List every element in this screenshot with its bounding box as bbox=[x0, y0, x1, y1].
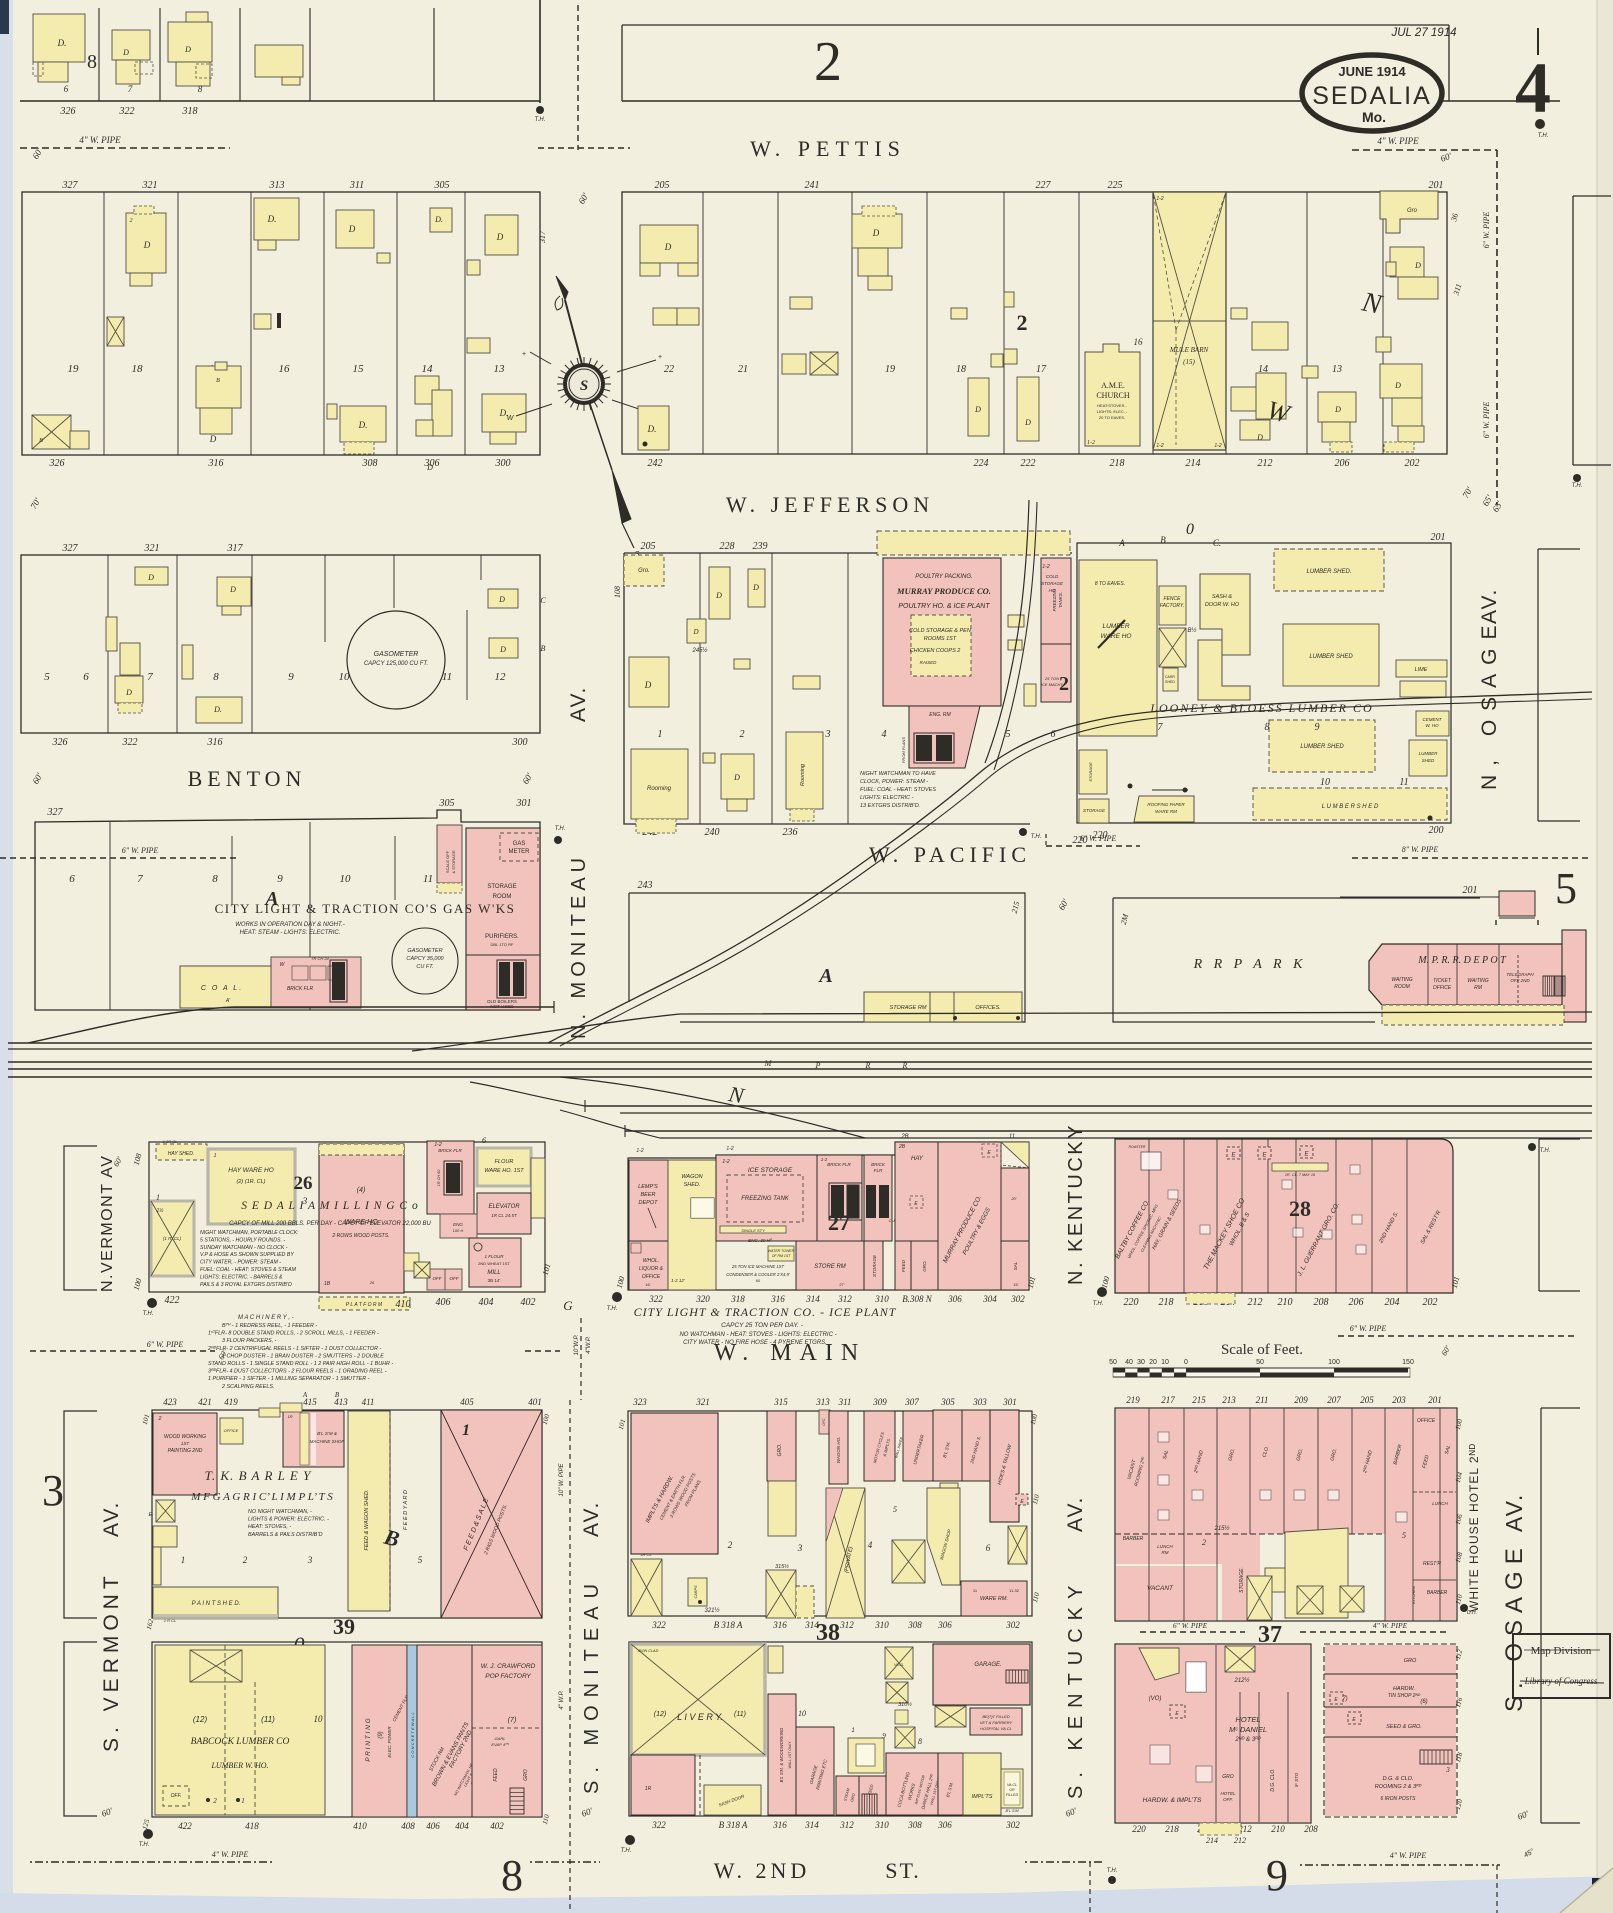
svg-text:1: 1 bbox=[462, 1422, 470, 1439]
svg-text:WHITE HOUSE HOTEL 2ᴺᴰ: WHITE HOUSE HOTEL 2ᴺᴰ bbox=[1467, 1443, 1481, 1612]
svg-text:B: B bbox=[541, 644, 546, 653]
svg-text:AV.: AV. bbox=[100, 1501, 123, 1537]
svg-text:317: 317 bbox=[227, 543, 244, 554]
svg-text:25 TON: 25 TON bbox=[1044, 676, 1059, 681]
svg-text:L I V E R Y.: L I V E R Y. bbox=[677, 1712, 723, 1722]
svg-text:TANKS.: TANKS. bbox=[1058, 592, 1063, 608]
svg-text:2B: 2B bbox=[898, 1144, 906, 1150]
svg-text:320: 320 bbox=[695, 1294, 710, 1304]
svg-text:STORAGE RM: STORAGE RM bbox=[890, 1005, 927, 1011]
svg-text:LUMBER: LUMBER bbox=[1419, 751, 1439, 756]
svg-text:1: 1 bbox=[156, 1193, 160, 1202]
svg-text:239: 239 bbox=[753, 541, 768, 552]
svg-text:0: 0 bbox=[1186, 521, 1194, 538]
svg-text:GRO.: GRO. bbox=[922, 1260, 927, 1272]
svg-text:B’L S’M &: B’L S’M & bbox=[317, 1431, 337, 1436]
svg-text:318: 318 bbox=[182, 106, 198, 117]
svg-text:W. PETTIS: W. PETTIS bbox=[750, 136, 906, 161]
svg-text:GARAGE.: GARAGE. bbox=[974, 1662, 1001, 1668]
svg-text:150: 150 bbox=[1402, 1359, 1414, 1366]
svg-text:3: 3 bbox=[307, 1555, 313, 1565]
svg-text:D: D bbox=[664, 242, 672, 252]
svg-text:EVAP 4ᵀᴴ: EVAP 4ᵀᴴ bbox=[491, 1742, 509, 1747]
svg-text:PURIFIERS.: PURIFIERS. bbox=[485, 934, 519, 940]
svg-text:228: 228 bbox=[720, 541, 735, 552]
svg-text:206: 206 bbox=[1349, 1297, 1364, 1308]
svg-text:410: 410 bbox=[353, 1821, 367, 1831]
svg-text:204: 204 bbox=[1385, 1297, 1400, 1308]
svg-text:12: 12 bbox=[495, 671, 507, 683]
svg-text:312: 312 bbox=[837, 1294, 852, 1304]
svg-text:T.H.: T.H. bbox=[139, 1842, 150, 1848]
svg-text:410: 410 bbox=[396, 1299, 411, 1310]
svg-text:STORAGE: STORAGE bbox=[487, 884, 516, 890]
svg-text:S. MONITEAU: S. MONITEAU bbox=[581, 1576, 603, 1794]
svg-text:6" W. PIPE: 6" W. PIPE bbox=[1482, 212, 1491, 249]
svg-text:POULTRY HO. & ICE PLANT: POULTRY HO. & ICE PLANT bbox=[898, 603, 990, 610]
svg-text:219: 219 bbox=[1126, 1395, 1140, 1405]
svg-text:D: D bbox=[1394, 381, 1401, 390]
svg-text:202: 202 bbox=[1405, 458, 1420, 469]
svg-text:CARPS: CARPS bbox=[694, 1585, 698, 1599]
svg-text:WALL 1ST ONLY: WALL 1ST ONLY bbox=[788, 1741, 792, 1769]
svg-text:322: 322 bbox=[119, 106, 135, 117]
svg-text:(1 R. CL): (1 R. CL) bbox=[163, 1236, 182, 1241]
svg-text:314: 314 bbox=[805, 1294, 820, 1304]
svg-text:4: 4 bbox=[1515, 48, 1551, 128]
svg-text:B: B bbox=[335, 1391, 340, 1399]
svg-text:100 H: 100 H bbox=[453, 1228, 464, 1233]
svg-text:208: 208 bbox=[1304, 1824, 1318, 1834]
svg-text:LEMP'S: LEMP'S bbox=[638, 1184, 658, 1190]
svg-text:310½: 310½ bbox=[898, 1701, 912, 1708]
svg-text:1: 1 bbox=[851, 1728, 854, 1734]
svg-text:225: 225 bbox=[1108, 180, 1123, 191]
svg-text:GRO: GRO bbox=[1404, 1658, 1417, 1664]
svg-text:SEDALIA: SEDALIA bbox=[1312, 82, 1432, 110]
svg-text:2ᴺᴰ & 3ᴿᴰ: 2ᴺᴰ & 3ᴿᴰ bbox=[1234, 1736, 1260, 1743]
svg-text:10"W.P.: 10"W.P. bbox=[574, 1335, 580, 1356]
svg-text:FEED & WAGON SHED.: FEED & WAGON SHED. bbox=[364, 1489, 370, 1550]
svg-text:2 ROWS WOOD POSTS.: 2 ROWS WOOD POSTS. bbox=[332, 1233, 390, 1239]
svg-text:SUNDAY WATCHMAN - NO CLOCK -: SUNDAY WATCHMAN - NO CLOCK - bbox=[200, 1245, 288, 1251]
svg-text:SCALE OFF: SCALE OFF bbox=[445, 850, 450, 873]
svg-text:(12): (12) bbox=[193, 1715, 208, 1724]
svg-text:D.: D. bbox=[358, 420, 368, 430]
svg-text:200: 200 bbox=[1429, 825, 1444, 836]
svg-text:WAITING: WAITING bbox=[1467, 978, 1488, 984]
svg-text:D: D bbox=[974, 405, 981, 414]
svg-text:B: B bbox=[39, 438, 43, 444]
svg-text:406: 406 bbox=[426, 1821, 440, 1831]
svg-text:6" W. PIPE: 6" W. PIPE bbox=[122, 846, 159, 855]
svg-text:RM: RM bbox=[1162, 1550, 1169, 1555]
svg-text:R: R bbox=[902, 1061, 908, 1070]
svg-text:8 TO EAVES.: 8 TO EAVES. bbox=[1095, 581, 1125, 587]
svg-text:OF RM 1ST: OF RM 1ST bbox=[772, 1254, 791, 1258]
svg-text:2: 2 bbox=[158, 1416, 162, 1422]
svg-text:215: 215 bbox=[1192, 1395, 1206, 1405]
svg-text:BABCOCK LUMBER CO: BABCOCK LUMBER CO bbox=[191, 1737, 290, 1747]
svg-text:B’L S’M. & WOODWORKING: B’L S’M. & WOODWORKING bbox=[779, 1727, 784, 1782]
svg-text:309: 309 bbox=[872, 1397, 887, 1407]
svg-text:305: 305 bbox=[434, 180, 450, 191]
svg-text:5: 5 bbox=[44, 671, 50, 683]
svg-text:322: 322 bbox=[648, 1294, 663, 1304]
svg-text:T.H.: T.H. bbox=[1572, 483, 1583, 489]
svg-text:OFC: OFC bbox=[822, 1418, 826, 1426]
svg-text:318: 318 bbox=[730, 1294, 745, 1304]
svg-text:OR: OR bbox=[1009, 1788, 1015, 1792]
svg-text:W. MAIN: W. MAIN bbox=[714, 1340, 866, 1366]
svg-text:423: 423 bbox=[163, 1397, 177, 1407]
svg-text:322: 322 bbox=[651, 1620, 666, 1630]
svg-text:4" W. PIPE: 4" W. PIPE bbox=[212, 1850, 249, 1859]
svg-text:CAPCY 25 TON PER DAY. -: CAPCY 25 TON PER DAY. - bbox=[721, 1322, 804, 1329]
svg-text:BRICK FLR: BRICK FLR bbox=[287, 986, 314, 992]
svg-text:CHURCH: CHURCH bbox=[1096, 391, 1130, 400]
svg-text:1-2: 1-2 bbox=[1214, 443, 1221, 449]
svg-text:210: 210 bbox=[1271, 1824, 1285, 1834]
svg-text:1R: 1R bbox=[287, 1414, 292, 1419]
svg-text:TICKET: TICKET bbox=[1433, 978, 1452, 984]
svg-text:11: 11 bbox=[1009, 1134, 1015, 1140]
svg-text:30: 30 bbox=[1137, 1359, 1145, 1366]
svg-text:402: 402 bbox=[521, 1297, 536, 1308]
svg-text:302: 302 bbox=[1010, 1294, 1025, 1304]
svg-text:D: D bbox=[143, 240, 151, 250]
svg-text:406: 406 bbox=[436, 1297, 451, 1308]
svg-text:6: 6 bbox=[482, 1136, 486, 1145]
svg-text:1R CH 60: 1R CH 60 bbox=[437, 1169, 441, 1187]
svg-text:CHICKEN COOPS 2: CHICKEN COOPS 2 bbox=[910, 648, 961, 654]
svg-text:T.H.: T.H. bbox=[1031, 834, 1042, 840]
svg-text:4" W. PIPE: 4" W. PIPE bbox=[79, 135, 121, 145]
svg-text:7: 7 bbox=[147, 671, 153, 683]
svg-text:316: 316 bbox=[772, 1620, 787, 1630]
svg-text:310: 310 bbox=[874, 1294, 889, 1304]
svg-text:326: 326 bbox=[49, 458, 65, 469]
svg-text:327: 327 bbox=[62, 180, 79, 191]
svg-text:AV.: AV. bbox=[1501, 1493, 1527, 1532]
svg-text:2: 2 bbox=[1017, 310, 1028, 335]
svg-text:(15): (15) bbox=[1183, 358, 1195, 366]
svg-text:307: 307 bbox=[904, 1397, 919, 1407]
svg-text:D: D bbox=[715, 591, 722, 600]
svg-text:314: 314 bbox=[804, 1820, 819, 1830]
svg-text:T.H.: T.H. bbox=[535, 117, 546, 123]
svg-text:NO WATCHMAN - HEAT: STOVES - L: NO WATCHMAN - HEAT: STOVES - LIGHTS: ELE… bbox=[679, 1332, 836, 1338]
svg-text:311: 311 bbox=[349, 180, 364, 191]
svg-text:HAY SHED.: HAY SHED. bbox=[168, 1151, 195, 1157]
svg-text:321: 321 bbox=[695, 1397, 710, 1407]
svg-text:212½: 212½ bbox=[1233, 1677, 1249, 1684]
svg-text:CU FT.: CU FT. bbox=[416, 964, 433, 970]
svg-text:19: 19 bbox=[68, 363, 80, 375]
svg-text:D: D bbox=[872, 228, 880, 238]
svg-text:Bᵀᴴ - 1 REDRESS REEL, - 1 FEE: Bᵀᴴ - 1 REDRESS REEL, - 1 FEEDER - bbox=[222, 1323, 317, 1329]
svg-text:POP FACTORY: POP FACTORY bbox=[485, 1673, 531, 1680]
svg-text:7: 7 bbox=[128, 84, 133, 94]
svg-text:(2) (1R. CL): (2) (1R. CL) bbox=[236, 1179, 265, 1185]
svg-text:5 STATIONS, - HOURLY ROUNDS. -: 5 STATIONS, - HOURLY ROUNDS. - bbox=[200, 1237, 285, 1243]
svg-text:20: 20 bbox=[1149, 1359, 1157, 1366]
svg-text:1 2R CL: 1 2R CL bbox=[163, 1139, 178, 1144]
svg-text:LUNCH: LUNCH bbox=[1157, 1544, 1173, 1549]
svg-text:404: 404 bbox=[479, 1297, 494, 1308]
svg-text:P R I N T I N G: P R I N T I N G bbox=[365, 1718, 372, 1761]
svg-text:M: M bbox=[764, 1059, 773, 1068]
svg-text:CAPCY OF MILL 200 BBLS. PER DA: CAPCY OF MILL 200 BBLS. PER DAY - CAPCY … bbox=[229, 1221, 431, 1227]
svg-text:245½: 245½ bbox=[691, 647, 707, 654]
svg-text:227: 227 bbox=[1036, 180, 1052, 191]
svg-text:D.: D. bbox=[647, 424, 657, 434]
svg-text:STORAGE: STORAGE bbox=[1088, 762, 1093, 782]
svg-text:4" W.P.: 4" W.P. bbox=[559, 1690, 565, 1709]
svg-text:PAINTING 2ND: PAINTING 2ND bbox=[168, 1448, 203, 1454]
svg-text:326: 326 bbox=[60, 106, 76, 117]
svg-text:26: 26 bbox=[369, 1280, 375, 1285]
svg-text:N.VERMONT AV: N.VERMONT AV bbox=[99, 1155, 116, 1292]
svg-text:1ˢᵀFLR- 8 DOUBLE STAND ROLLS,: 1ˢᵀFLR- 8 DOUBLE STAND ROLLS, - 2 SCROLL… bbox=[208, 1331, 379, 1337]
svg-text:D: D bbox=[1334, 405, 1341, 414]
svg-text:IRON CLAD: IRON CLAD bbox=[638, 1649, 659, 1653]
svg-text:LOONEY & BLOESS LUMBER CO: LOONEY & BLOESS LUMBER CO bbox=[1149, 701, 1373, 715]
svg-text:1: 1 bbox=[214, 1153, 217, 1159]
svg-text:40: 40 bbox=[1125, 1359, 1133, 1366]
svg-text:17: 17 bbox=[1036, 364, 1047, 375]
svg-text:201: 201 bbox=[1431, 532, 1446, 543]
svg-text:108: 108 bbox=[613, 586, 622, 598]
svg-text:FLOUR: FLOUR bbox=[495, 1159, 514, 1165]
svg-text:8: 8 bbox=[212, 873, 218, 885]
svg-text:T.H.: T.H. bbox=[1107, 1868, 1118, 1874]
svg-text:1-2: 1-2 bbox=[1042, 564, 1049, 570]
svg-text:MILL: MILL bbox=[487, 1270, 500, 1276]
svg-text:WARE RM: WARE RM bbox=[1155, 809, 1177, 814]
svg-text:Mo.: Mo. bbox=[1362, 109, 1386, 125]
svg-text:D.G. & CLO.: D.G. & CLO. bbox=[1383, 1776, 1414, 1782]
svg-text:LUMBER SHED: LUMBER SHED bbox=[1300, 744, 1344, 750]
svg-text:T.H.: T.H. bbox=[555, 826, 566, 832]
svg-text:NIGHT WATCHMAN TO HAVE: NIGHT WATCHMAN TO HAVE bbox=[860, 771, 936, 777]
svg-text:HEAT:STOVES -: HEAT:STOVES - bbox=[1097, 403, 1127, 408]
svg-text:LIME: LIME bbox=[1415, 667, 1428, 673]
svg-text:316: 316 bbox=[208, 458, 224, 469]
svg-text:Gro.: Gro. bbox=[638, 568, 650, 574]
svg-text:MACHINE SHOP: MACHINE SHOP bbox=[310, 1439, 345, 1444]
svg-text:W. HO: W. HO bbox=[1425, 723, 1439, 728]
svg-text:1 R CL: 1 R CL bbox=[164, 1618, 176, 1623]
svg-text:SINGLE STY: SINGLE STY bbox=[741, 1228, 765, 1233]
svg-text:(11): (11) bbox=[261, 1715, 275, 1724]
svg-text:2: 2 bbox=[814, 31, 842, 93]
svg-text:HOTEL: HOTEL bbox=[1235, 1715, 1260, 1724]
svg-text:+: + bbox=[658, 354, 662, 361]
svg-text:100: 100 bbox=[1328, 1359, 1340, 1366]
svg-text:W. J. CRAWFORD: W. J. CRAWFORD bbox=[481, 1663, 536, 1670]
svg-text:321: 321 bbox=[144, 543, 160, 554]
svg-text:218: 218 bbox=[1159, 1297, 1174, 1308]
svg-text:16: 16 bbox=[279, 363, 291, 375]
svg-text:STORE RM: STORE RM bbox=[814, 1264, 846, 1270]
svg-text:BEER: BEER bbox=[641, 1192, 656, 1198]
svg-text:LIGHTS: ELECTRIC. - BARRELS &: LIGHTS: ELECTRIC. - BARRELS & bbox=[200, 1274, 283, 1280]
svg-text:METER: METER bbox=[509, 849, 531, 855]
svg-text:20’: 20’ bbox=[1010, 1196, 1016, 1201]
svg-text:212: 212 bbox=[1248, 1297, 1263, 1308]
svg-text:BARBER: BARBER bbox=[1427, 1590, 1448, 1596]
svg-text:B.308 N: B.308 N bbox=[902, 1294, 932, 1304]
svg-text:308: 308 bbox=[907, 1820, 922, 1830]
svg-text:1½: 1½ bbox=[157, 1207, 165, 1214]
svg-text:SAL: SAL bbox=[1013, 1261, 1018, 1270]
svg-text:224: 224 bbox=[974, 458, 989, 469]
svg-text:PAILS & 3 ROYAL EXTGRS DISTRIB: PAILS & 3 ROYAL EXTGRS DISTRIB’D bbox=[200, 1282, 292, 1288]
svg-text:CAPCY 125,000 CU FT.: CAPCY 125,000 CU FT. bbox=[364, 661, 429, 667]
svg-text:2B: 2B bbox=[900, 1134, 908, 1140]
svg-text:310: 310 bbox=[874, 1620, 889, 1630]
svg-text:11: 11 bbox=[1399, 777, 1408, 788]
svg-text:F E E D Y A R D: F E E D Y A R D bbox=[403, 1490, 409, 1530]
svg-text:FEED: FEED bbox=[493, 1768, 499, 1782]
svg-text:B: B bbox=[216, 378, 220, 384]
svg-text:6 IRON POSTS: 6 IRON POSTS bbox=[1380, 1796, 1416, 1802]
svg-text:W. JEFFERSON: W. JEFFERSON bbox=[726, 492, 934, 517]
svg-text:6: 6 bbox=[1051, 729, 1056, 740]
svg-text:LIGHTS: ELECTRIC -: LIGHTS: ELECTRIC - bbox=[860, 795, 914, 801]
svg-text:W. 2ND: W. 2ND bbox=[714, 1858, 811, 1883]
svg-text:301: 301 bbox=[516, 798, 532, 809]
svg-text:COLD STORAGE & PEN: COLD STORAGE & PEN bbox=[909, 628, 971, 634]
svg-text:VACANT: VACANT bbox=[1147, 1585, 1174, 1592]
svg-text:OFFICE: OFFICE bbox=[642, 1274, 661, 1280]
svg-text:CARR: CARR bbox=[1165, 675, 1175, 679]
svg-text:C O N C R E T E W A L L: C O N C R E T E W A L L bbox=[410, 1712, 415, 1757]
svg-text:11: 11 bbox=[423, 873, 433, 885]
svg-text:D: D bbox=[348, 224, 356, 234]
svg-text:LUMBER W. HO.: LUMBER W. HO. bbox=[210, 1761, 268, 1770]
svg-text:N. MONITEAU: N. MONITEAU bbox=[568, 853, 590, 1039]
svg-text:D: D bbox=[752, 583, 759, 592]
svg-text:MURRAY PRODUCE CO.: MURRAY PRODUCE CO. bbox=[896, 586, 991, 596]
svg-text:10: 10 bbox=[1320, 777, 1330, 788]
svg-text:D: D bbox=[499, 645, 506, 654]
svg-text:FUEL: COAL - HEAT: STOVES: FUEL: COAL - HEAT: STOVES bbox=[860, 787, 936, 793]
svg-text:B’L S’M: B’L S’M bbox=[1005, 1809, 1019, 1813]
svg-text:300: 300 bbox=[495, 458, 511, 469]
svg-text:D: D bbox=[184, 45, 191, 54]
svg-text:STORAGE: STORAGE bbox=[1041, 581, 1064, 586]
svg-text:SASH &: SASH & bbox=[1212, 594, 1233, 600]
svg-text:REST’R: REST’R bbox=[1423, 1561, 1441, 1567]
svg-text:M. P. R. R. D E P O T: M. P. R. R. D E P O T bbox=[1417, 955, 1507, 966]
svg-text:5ᶜ STO: 5ᶜ STO bbox=[1294, 1772, 1299, 1787]
svg-text:6: 6 bbox=[986, 1543, 991, 1553]
svg-text:& STORAGE: & STORAGE bbox=[451, 850, 456, 874]
svg-text:19: 19 bbox=[885, 364, 895, 375]
svg-text:9: 9 bbox=[1266, 1851, 1288, 1900]
svg-text:SHED.: SHED. bbox=[684, 1182, 701, 1188]
svg-text:D: D bbox=[125, 688, 132, 697]
svg-text:OFFICE: OFFICE bbox=[224, 1428, 239, 1433]
svg-text:GRO: GRO bbox=[523, 1769, 529, 1781]
svg-text:C: C bbox=[540, 596, 546, 605]
svg-text:WATER TOWER: WATER TOWER bbox=[768, 1249, 795, 1253]
svg-text:BARRELS & PAILS DISTRIB’D: BARRELS & PAILS DISTRIB’D bbox=[248, 1532, 323, 1538]
svg-text:312: 312 bbox=[839, 1820, 854, 1830]
svg-text:1-2: 1-2 bbox=[821, 1157, 828, 1162]
svg-text:28: 28 bbox=[1289, 1196, 1311, 1221]
svg-text:9: 9 bbox=[882, 1732, 886, 1740]
svg-text:1-2: 1-2 bbox=[1156, 443, 1163, 449]
svg-text:218: 218 bbox=[1110, 458, 1125, 469]
svg-text:B 318 A: B 318 A bbox=[719, 1820, 748, 1830]
svg-text:305: 305 bbox=[439, 798, 455, 809]
svg-text:GAS: GAS bbox=[513, 841, 526, 847]
svg-text:A.M.E.: A.M.E. bbox=[1101, 381, 1125, 390]
svg-text:+: + bbox=[522, 351, 526, 358]
svg-text:422: 422 bbox=[165, 1295, 180, 1306]
svg-text:ROOM: ROOM bbox=[1394, 984, 1410, 990]
svg-text:T.H.: T.H. bbox=[1538, 133, 1549, 139]
svg-text:WOOD WORKING: WOOD WORKING bbox=[164, 1434, 206, 1440]
svg-text:316: 316 bbox=[772, 1820, 787, 1830]
svg-text:S: S bbox=[580, 378, 588, 394]
svg-text:301: 301 bbox=[1002, 1397, 1017, 1407]
svg-text:HARDW. & IMPL’TS: HARDW. & IMPL’TS bbox=[1143, 1797, 1202, 1804]
svg-text:ROOMING 2 & 3ᴿᴰ: ROOMING 2 & 3ᴿᴰ bbox=[1375, 1783, 1422, 1790]
svg-text:(VO): (VO) bbox=[1149, 1696, 1162, 1702]
svg-text:323: 323 bbox=[632, 1397, 647, 1407]
svg-text:ROOMS 1ST: ROOMS 1ST bbox=[924, 636, 957, 642]
svg-text:2: 2 bbox=[130, 218, 133, 224]
svg-text:14: 14 bbox=[422, 363, 434, 375]
svg-text:6: 6 bbox=[83, 671, 89, 683]
svg-text:8: 8 bbox=[1265, 722, 1270, 733]
svg-text:COLD: COLD bbox=[1046, 574, 1059, 579]
svg-text:404: 404 bbox=[455, 1821, 469, 1831]
svg-text:POULTRY PACKING.: POULTRY PACKING. bbox=[915, 574, 972, 580]
svg-text:D: D bbox=[147, 573, 154, 582]
svg-text:RM: RM bbox=[1474, 985, 1483, 991]
svg-text:VA CL: VA CL bbox=[1007, 1783, 1017, 1787]
svg-text:D.: D. bbox=[434, 215, 443, 224]
svg-text:2: 2 bbox=[728, 1540, 733, 1550]
svg-text:0: 0 bbox=[1184, 1359, 1188, 1366]
svg-text:NIGHT WATCHMAN, PORTABLE CLOCK: NIGHT WATCHMAN, PORTABLE CLOCK: bbox=[200, 1230, 299, 1236]
svg-text:D: D bbox=[644, 680, 652, 690]
svg-text:D: D bbox=[229, 585, 236, 594]
svg-text:(4): (4) bbox=[357, 1187, 366, 1194]
svg-text:408: 408 bbox=[401, 1821, 415, 1831]
svg-text:4: 4 bbox=[882, 729, 887, 740]
svg-text:3: 3 bbox=[42, 1466, 64, 1515]
svg-text:13 EXTGRS DISTRIB’D.: 13 EXTGRS DISTRIB’D. bbox=[860, 803, 920, 809]
svg-text:212: 212 bbox=[1258, 458, 1273, 469]
svg-text:MULE BARN: MULE BARN bbox=[1169, 346, 1209, 354]
svg-text:10: 10 bbox=[340, 873, 352, 885]
svg-text:6: 6 bbox=[69, 873, 75, 885]
svg-text:215½: 215½ bbox=[1213, 1525, 1229, 1532]
svg-text:60: 60 bbox=[756, 1278, 761, 1283]
svg-text:418: 418 bbox=[245, 1821, 259, 1831]
svg-text:TIN SHOP 2ᴺᴰ: TIN SHOP 2ᴺᴰ bbox=[1388, 1693, 1421, 1699]
svg-text:JUNE 1914: JUNE 1914 bbox=[1338, 64, 1406, 79]
svg-text:HAY: HAY bbox=[911, 1156, 924, 1162]
svg-text:(12): (12) bbox=[654, 1711, 666, 1718]
svg-text:202: 202 bbox=[1423, 1297, 1438, 1308]
